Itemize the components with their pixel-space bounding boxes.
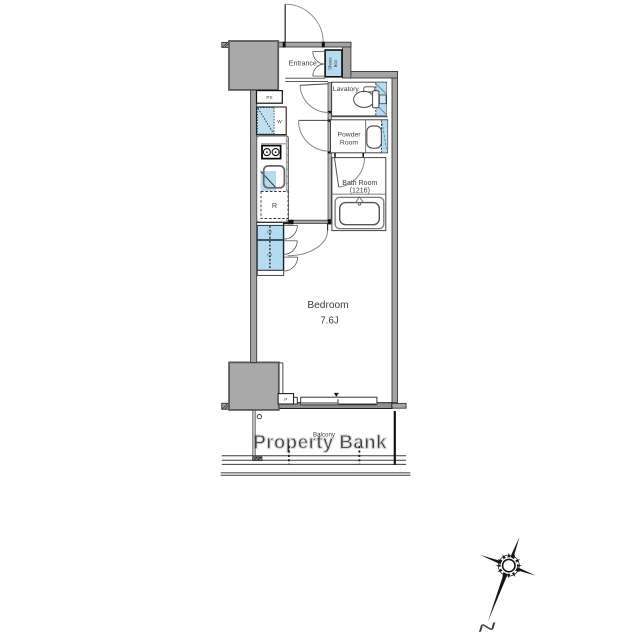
svg-text:P: P bbox=[284, 397, 287, 402]
svg-text:N: N bbox=[477, 620, 498, 634]
svg-text:Room: Room bbox=[340, 139, 358, 146]
svg-text:R: R bbox=[272, 201, 277, 210]
svg-text:Bath Room: Bath Room bbox=[342, 180, 377, 187]
svg-text:Box: Box bbox=[333, 59, 338, 67]
svg-text:Lavatory: Lavatory bbox=[333, 86, 360, 93]
svg-text:7.6J: 7.6J bbox=[320, 316, 339, 327]
svg-text:PS: PS bbox=[266, 95, 272, 100]
svg-text:W: W bbox=[277, 119, 282, 125]
svg-text:C: C bbox=[268, 230, 274, 234]
svg-text:(1216): (1216) bbox=[350, 187, 370, 194]
svg-text:Powder: Powder bbox=[337, 132, 361, 139]
svg-text:Balcony: Balcony bbox=[313, 432, 336, 439]
svg-text:Bedroom: Bedroom bbox=[307, 300, 348, 311]
svg-text:C: C bbox=[268, 253, 274, 257]
svg-text:Entrance: Entrance bbox=[289, 60, 317, 67]
